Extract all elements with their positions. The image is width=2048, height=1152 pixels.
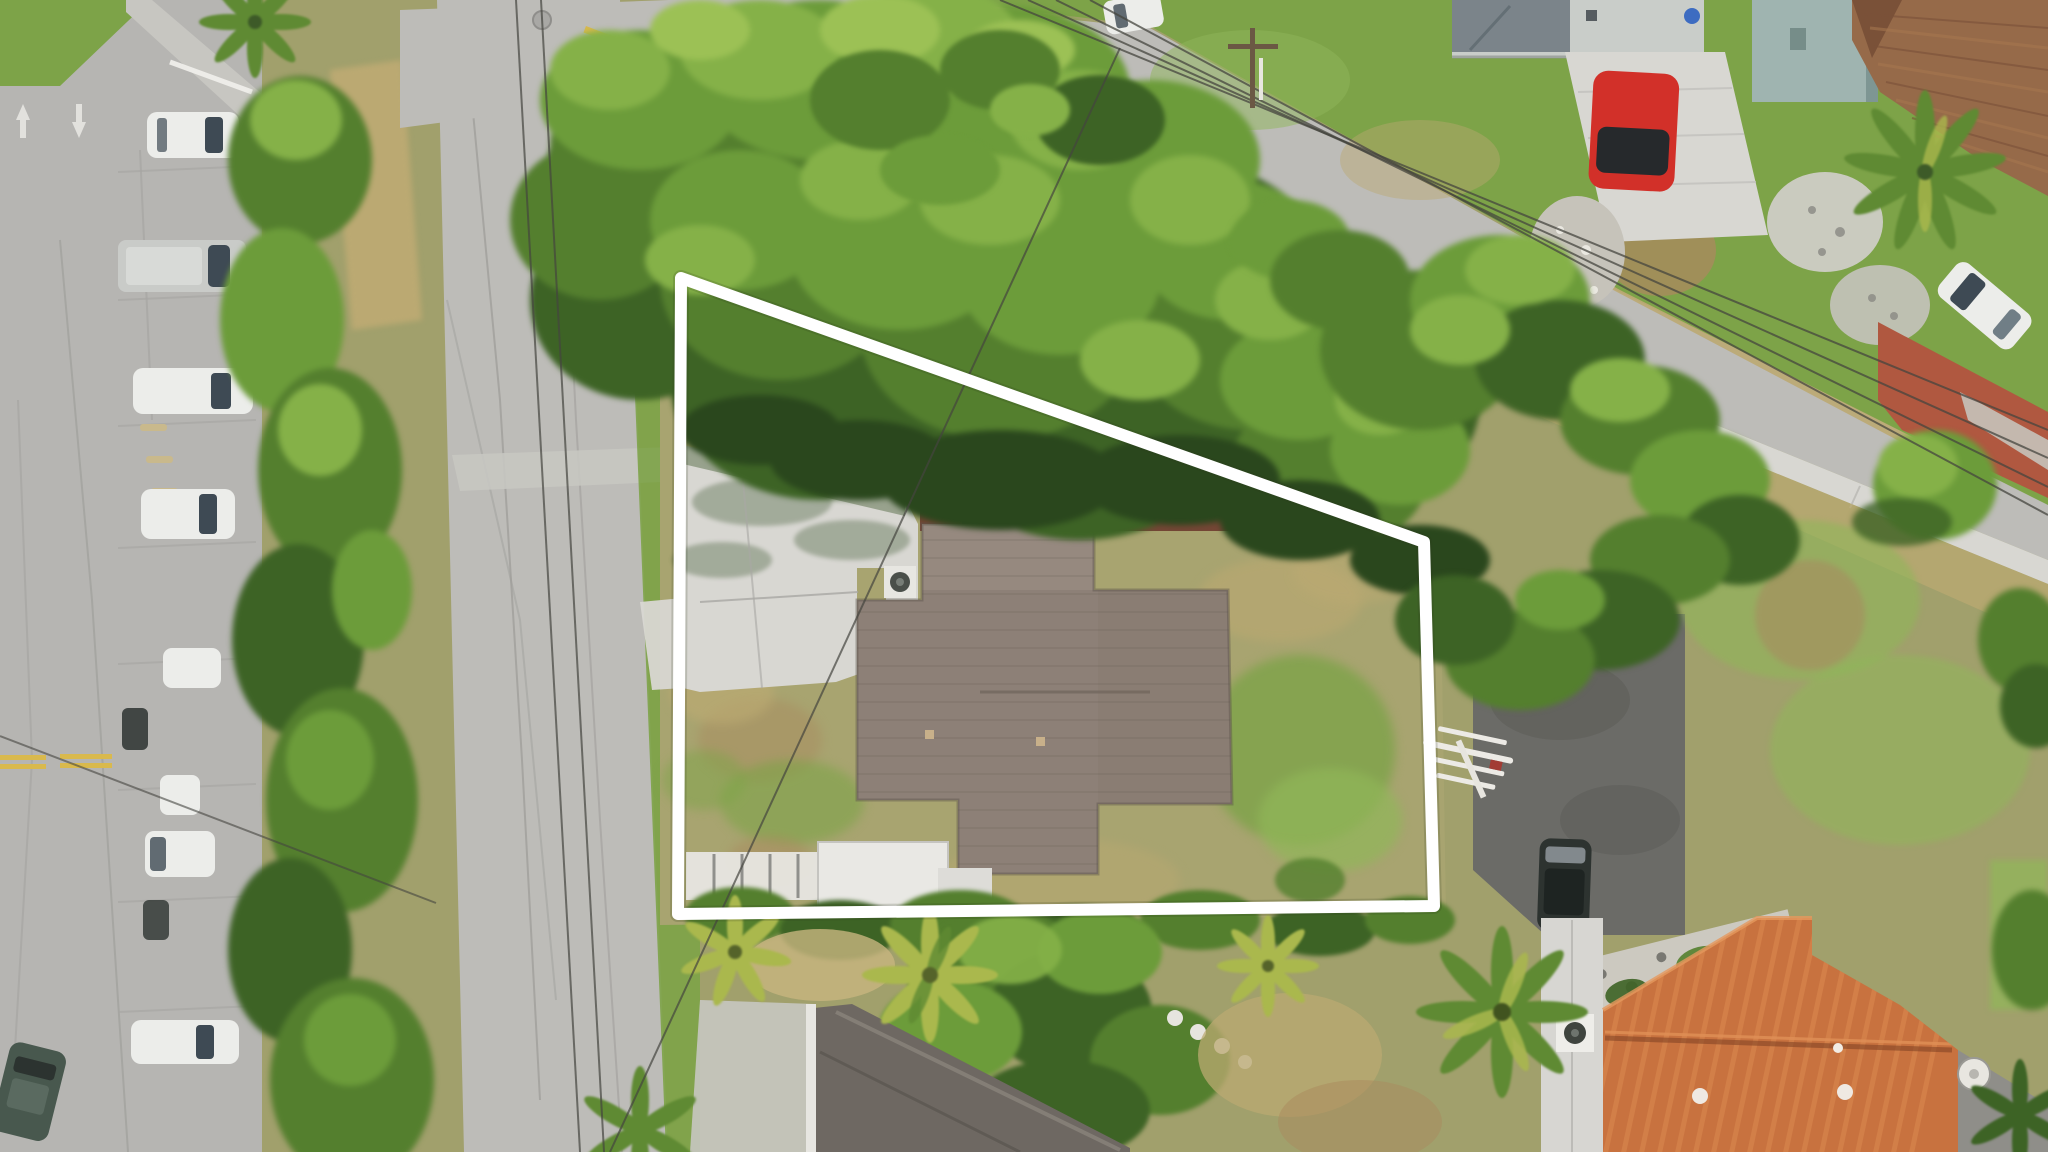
blue-barrel [1684,8,1700,24]
roof-vent [925,730,934,739]
palm-tree [1217,915,1319,1017]
parked-car [147,112,239,158]
red-sports-car [1588,70,1680,192]
neighbor-house-north [1452,0,1704,58]
rear-concrete-pad [690,1000,814,1152]
parking-lot [0,0,262,1152]
flat-roof-band [1541,918,1603,1152]
parked-car [160,775,200,815]
aerial-photo: Aerial drone photo of a residential lot … [0,0,2048,1152]
roof-vent [1036,737,1045,746]
parked-car [163,648,221,688]
roof-vent [1692,1088,1708,1104]
black-suv [1537,838,1592,932]
parapet [806,1004,816,1152]
ac-unit [884,566,916,598]
silver-palm-skirt [1767,172,1883,272]
palm-tree [1416,926,1588,1098]
parked-car [141,489,235,539]
parked-car [145,831,215,877]
palm-tree [862,907,998,1043]
roof-vent [1837,1084,1853,1100]
aerial-photo-canvas: Aerial drone photo of a residential lot … [0,0,2048,1152]
parked-car [131,1020,239,1064]
parked-car [122,708,148,750]
parked-car [143,900,169,940]
chimney [1586,10,1597,21]
